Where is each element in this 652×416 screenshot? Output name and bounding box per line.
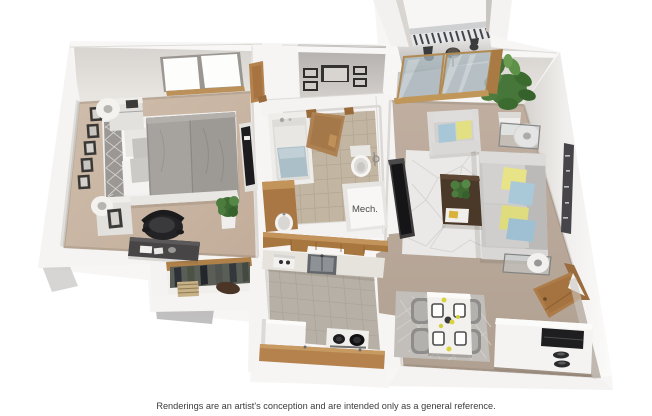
svg-text:Mech.: Mech. — [352, 204, 378, 215]
